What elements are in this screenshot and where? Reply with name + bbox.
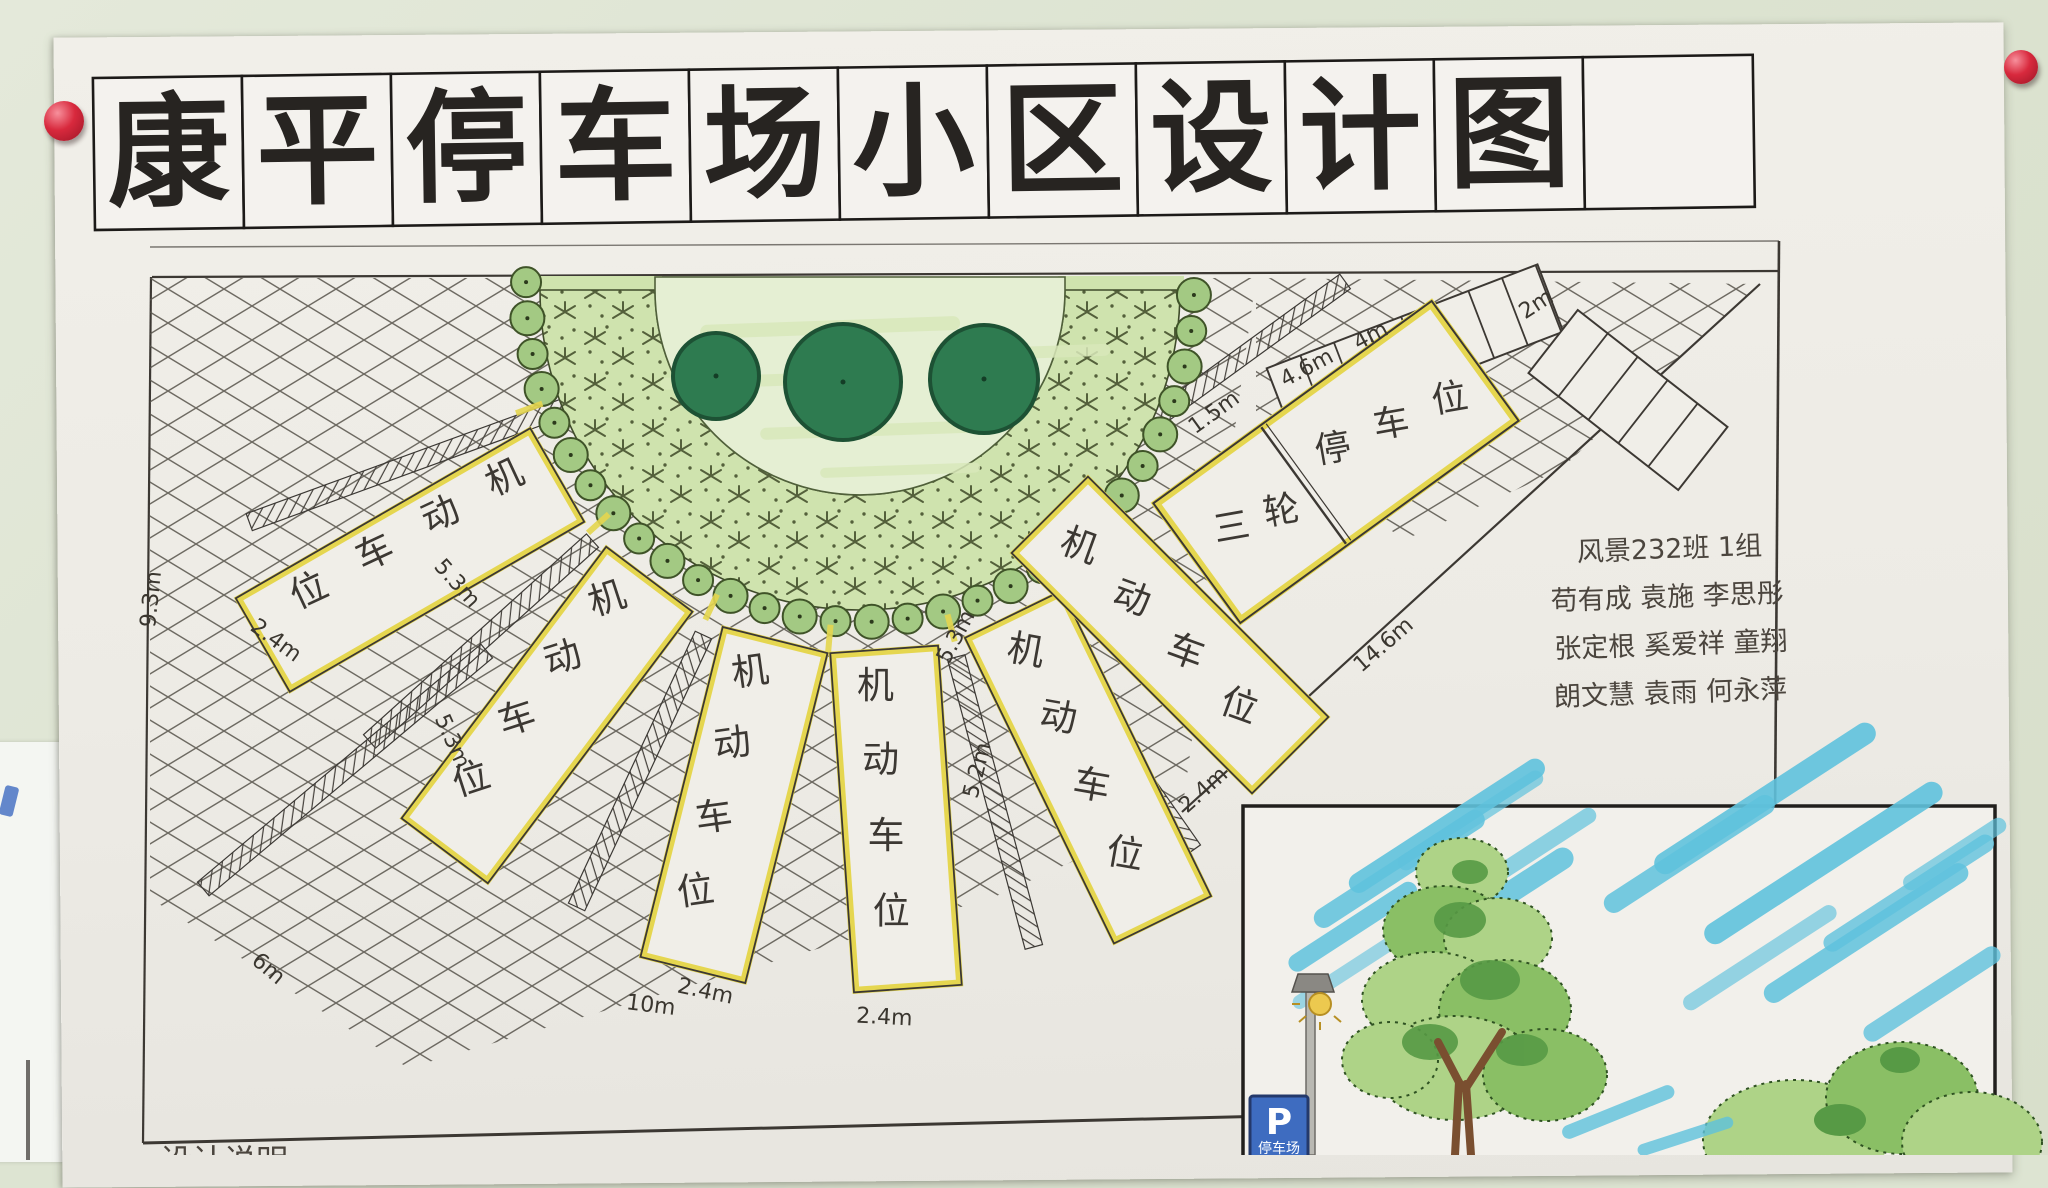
stall-label-char: 位 bbox=[1103, 829, 1147, 878]
stall-label-char: 机 bbox=[1004, 626, 1048, 675]
title-char: 场 bbox=[702, 73, 826, 217]
team-info-line: 苟有成 袁施 李思彤 bbox=[1550, 578, 1784, 617]
title-char: 车 bbox=[553, 75, 677, 219]
lamp-bulb bbox=[1309, 993, 1331, 1015]
tricycle-label-char: 三 bbox=[1210, 504, 1253, 551]
title-char: 停 bbox=[404, 77, 528, 221]
team-info-line: 张定根 奚爱祥 童翔 bbox=[1554, 626, 1788, 665]
pushpin-left bbox=[44, 101, 84, 141]
team-info-line: 朗文慧 袁雨 何永萍 bbox=[1554, 674, 1788, 713]
dimension-label: 2.4m bbox=[856, 1004, 914, 1032]
stall-label-char: 动 bbox=[711, 719, 754, 767]
title-char: 图 bbox=[1447, 62, 1571, 206]
dimension-label: 14.6m bbox=[1349, 613, 1419, 678]
tricycle-label-char: 位 bbox=[1428, 376, 1471, 423]
team-info-line: 风景232班 1组 bbox=[1576, 531, 1762, 568]
tricycle-label-char: 轮 bbox=[1260, 488, 1303, 535]
design-note: 设计说明 bbox=[160, 1142, 288, 1155]
poster-title-row: 康平停车场小区设计图 bbox=[93, 55, 1755, 230]
stall-label-char: 位 bbox=[873, 890, 910, 933]
parking-sign: P 停车场 bbox=[1250, 1096, 1308, 1155]
plan-drawing: 康平停车场小区设计图 bbox=[0, 0, 2048, 1155]
stall-label-char: 机 bbox=[729, 647, 772, 695]
title-char: 区 bbox=[1000, 69, 1124, 213]
stall-label-char: 动 bbox=[862, 738, 899, 781]
title-char: 小 bbox=[851, 71, 975, 215]
pushpin-right bbox=[2004, 50, 2038, 84]
stall-label-char: 动 bbox=[1036, 692, 1080, 741]
parking-sign-p: P bbox=[1266, 1102, 1292, 1143]
inset-panel: P 停车场 bbox=[1243, 718, 2042, 1155]
team-info-block: 风景232班 1组 苟有成 袁施 李思彤 张定根 奚爱祥 童翔 朗文慧 袁雨 何… bbox=[1548, 530, 1789, 713]
parking-sign-label: 停车场 bbox=[1258, 1140, 1300, 1155]
dimension-label: 10m bbox=[625, 990, 677, 1021]
stall-label-char: 位 bbox=[674, 867, 717, 915]
stall-label-char: 车 bbox=[693, 793, 736, 841]
title-char: 平 bbox=[255, 79, 379, 223]
stall-label-char: 机 bbox=[857, 664, 894, 707]
tricycle-label-char: 停 bbox=[1312, 426, 1355, 473]
title-char: 计 bbox=[1298, 64, 1422, 208]
stall-label-char: 车 bbox=[1070, 761, 1114, 810]
parking-stall: 机动车位 bbox=[830, 646, 961, 993]
title-empty-box bbox=[1583, 55, 1755, 209]
title-char: 设 bbox=[1149, 67, 1273, 211]
title-char: 康 bbox=[106, 81, 230, 225]
tricycle-label-char: 车 bbox=[1370, 401, 1413, 448]
stall-label-char: 车 bbox=[867, 814, 904, 857]
